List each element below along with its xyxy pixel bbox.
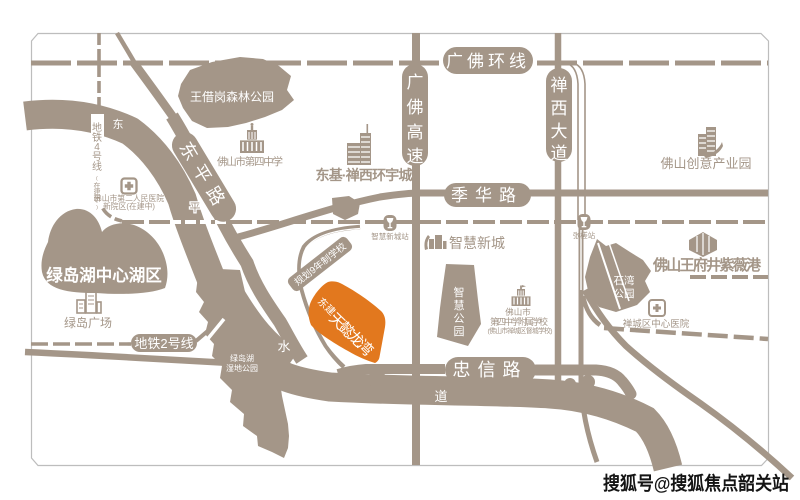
svg-text:线: 线 (92, 160, 102, 173)
svg-text:绿岛湖中心湖区: 绿岛湖中心湖区 (46, 265, 162, 285)
svg-text:佛: 佛 (407, 98, 424, 117)
svg-text:公: 公 (454, 313, 465, 325)
svg-text:王借岗森林公园: 王借岗森林公园 (190, 89, 274, 104)
svg-text:忠信路: 忠信路 (453, 360, 528, 380)
svg-text:禅: 禅 (551, 76, 568, 95)
svg-text:搜狐号@搜狐焦点韶关站: 搜狐号@搜狐焦点韶关站 (603, 473, 789, 494)
svg-text:高: 高 (407, 123, 424, 142)
svg-text:湿地公园: 湿地公园 (226, 363, 258, 373)
svg-text:禅城区中心医院: 禅城区中心医院 (623, 318, 690, 330)
svg-text:园: 园 (454, 325, 465, 338)
svg-text:道: 道 (434, 389, 447, 404)
svg-text:新院区(在建中): 新院区(在建中) (103, 201, 155, 211)
svg-text:绿岛广场: 绿岛广场 (64, 315, 112, 330)
svg-text:速: 速 (407, 147, 424, 166)
svg-text:佛山市第四中学: 佛山市第四中学 (217, 155, 283, 168)
svg-text:在: 在 (94, 181, 101, 190)
svg-text:东基·禅西环宇城: 东基·禅西环宇城 (316, 167, 413, 183)
svg-text:智慧新城站: 智慧新城站 (371, 231, 409, 241)
svg-text:季华路: 季华路 (451, 186, 523, 205)
svg-text:地铁2号线: 地铁2号线 (134, 336, 193, 351)
svg-text:西: 西 (551, 99, 568, 118)
svg-text:张槎站: 张槎站 (573, 230, 596, 240)
svg-text:慧: 慧 (454, 298, 465, 312)
svg-text:﹚: ﹚ (94, 204, 101, 211)
svg-text:﹙: ﹙ (94, 175, 101, 182)
svg-text:第四中学附属学校: 第四中学附属学校 (490, 316, 548, 327)
svg-text:水: 水 (277, 339, 290, 354)
svg-text:广佛环线: 广佛环线 (446, 52, 530, 71)
svg-text:智: 智 (454, 285, 465, 299)
svg-text:广: 广 (407, 73, 424, 92)
svg-text:(佛山市禅城区督城学校): (佛山市禅城区督城学校) (488, 326, 553, 335)
svg-text:智慧新城: 智慧新城 (449, 235, 505, 251)
svg-text:佛山王府井紫薇港: 佛山王府井紫薇港 (652, 256, 762, 274)
svg-text:平: 平 (190, 202, 201, 214)
svg-text:道: 道 (551, 144, 568, 163)
svg-text:公园: 公园 (614, 288, 635, 300)
svg-text:绿岛湖: 绿岛湖 (230, 353, 254, 363)
svg-text:东: 东 (113, 118, 124, 131)
svg-text:佛山创意产业园: 佛山创意产业园 (660, 156, 751, 171)
svg-text:石湾: 石湾 (614, 274, 635, 287)
svg-text:大: 大 (551, 122, 568, 141)
svg-text:佛山市: 佛山市 (505, 307, 531, 317)
